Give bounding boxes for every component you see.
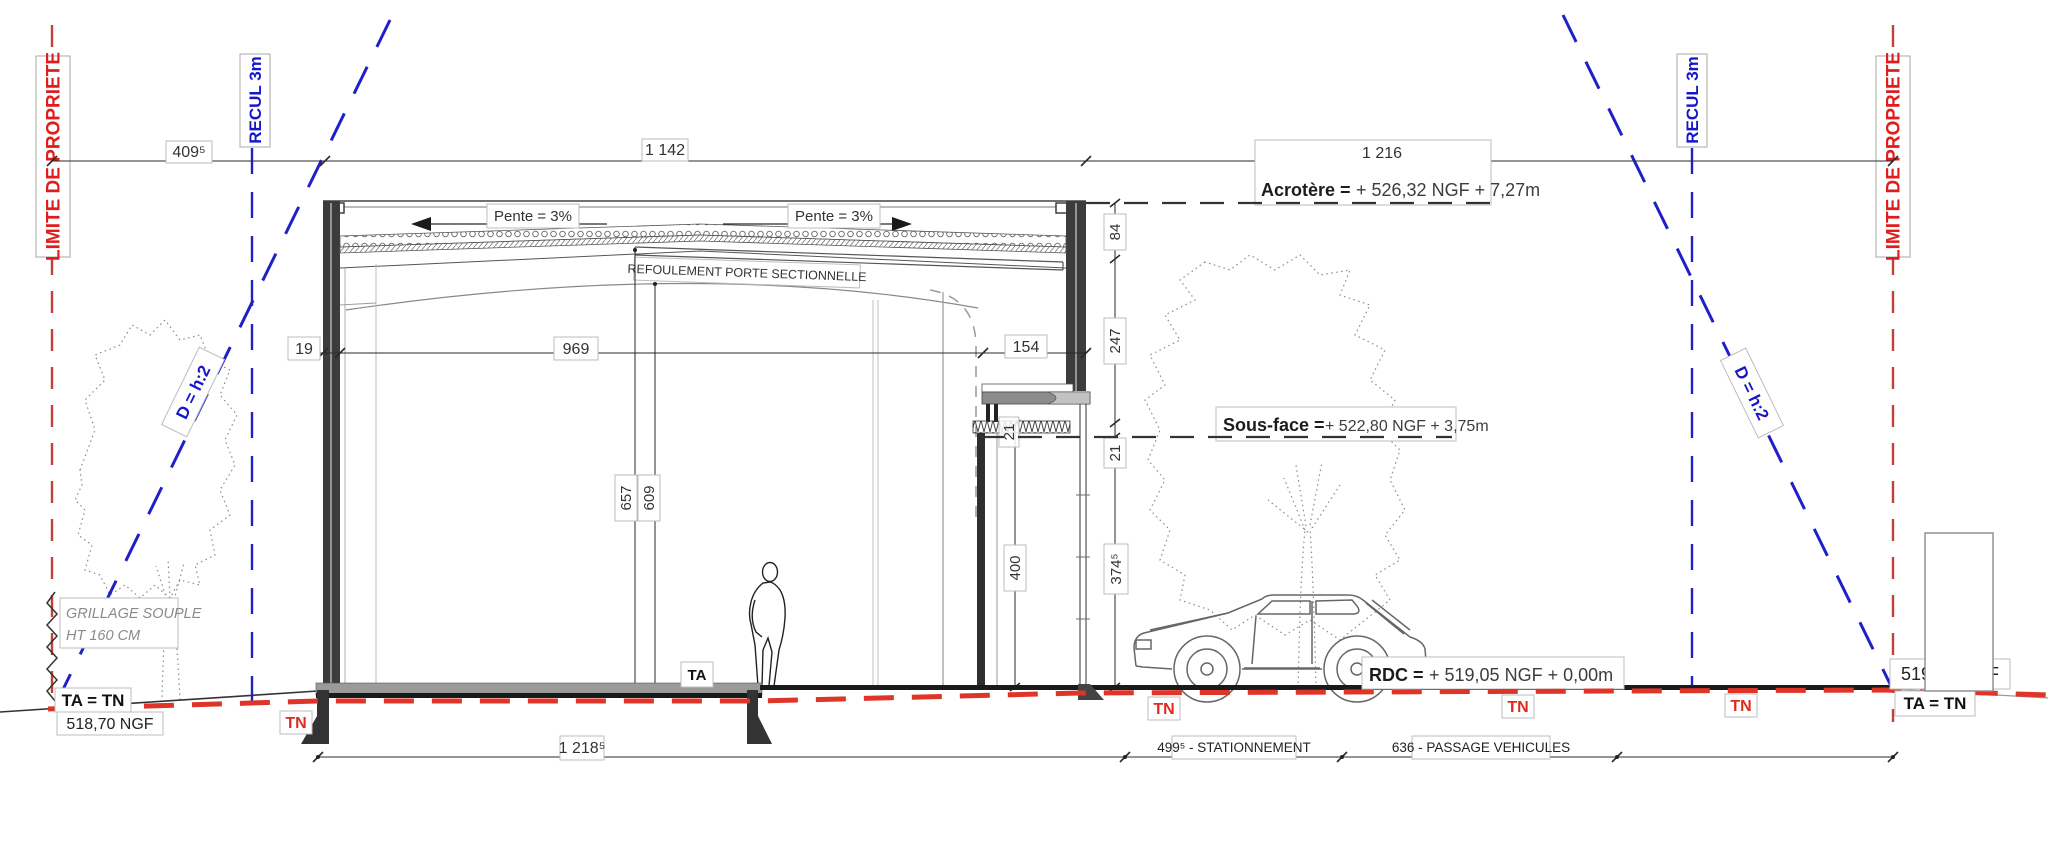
adjacent-structure: [1925, 533, 1993, 691]
dim-hall-clear-height: 657: [618, 485, 635, 510]
top-dim-middle: 1 142: [645, 142, 685, 159]
canopy-insulation: [973, 421, 1070, 433]
property-limit-text: LIMITE DE PROPRIETE: [1884, 52, 1905, 261]
setback-text: RECUL 3m: [1683, 56, 1702, 144]
dim-parapet: 84: [1107, 224, 1124, 241]
property-limit-label-left: LIMITE DE PROPRIETE: [36, 52, 70, 261]
roof-arch-chord: [346, 283, 978, 310]
ta-tn-left: TA = TN 518,70 NGF: [55, 688, 163, 735]
top-dimension-line: 409⁵ 1 142: [47, 139, 1898, 166]
dim-interior-width: 969: [563, 341, 590, 358]
acrotere-label: Acrotère =: [1261, 180, 1351, 200]
ground-platform-line: [760, 685, 1893, 690]
bottom-dim-passage: 636 - PASSAGE VEHICULES: [1392, 740, 1570, 755]
interior-height-dims: 657 609: [615, 248, 660, 689]
dim-canopy-edge: 21: [1107, 445, 1124, 462]
setback-text: RECUL 3m: [246, 56, 265, 144]
property-limit-label-right: LIMITE DE PROPRIETE: [1876, 52, 1910, 261]
bottom-dim-slab: 1 218⁵: [559, 740, 606, 757]
terrain-left-line: [0, 691, 318, 712]
bottom-dimension-line: 1 218⁵ 499⁵ - STATIONNEMENT 636 - PASSAG…: [313, 736, 1898, 762]
sousface-label: Sous-face =: [1223, 415, 1325, 435]
grillage-line1: GRILLAGE SOUPLE: [66, 606, 202, 622]
grillage-line2: HT 160 CM: [66, 628, 141, 644]
setback-label-left: RECUL 3m: [240, 54, 270, 147]
tn-label-4: TN: [1725, 694, 1757, 717]
ta-tn-text: TA = TN: [62, 691, 125, 710]
dim-facade-upper: 247: [1107, 328, 1124, 353]
bottom-dim-parking: 499⁵ - STATIONNEMENT: [1157, 740, 1311, 755]
rdc-value: + 519,05 NGF + 0,00m: [1429, 665, 1613, 685]
tn-text: TN: [1153, 701, 1174, 718]
grillage-label: GRILLAGE SOUPLE HT 160 CM: [60, 598, 202, 648]
building-section: REFOULEMENT PORTE SECTIONNELLE Pente = 3…: [323, 201, 1090, 690]
dim-under-canopy: 374⁵: [1108, 553, 1125, 584]
acrotere-value: + 526,32 NGF + 7,27m: [1356, 180, 1540, 200]
acrotere-annotation: 1 216 Acrotère = + 526,32 NGF + 7,27m: [1255, 140, 1540, 205]
ta-label: TA: [681, 662, 713, 687]
sousface-value: + 522,80 NGF + 3,75m: [1325, 418, 1489, 435]
tn-label-1: TN: [280, 711, 312, 734]
tn-text: TN: [1507, 699, 1528, 716]
parapet-cap-right: [1056, 203, 1067, 213]
door-swing-path: [930, 290, 976, 520]
opening-height-dim: 400 21: [999, 417, 1026, 691]
ta-text: TA: [688, 667, 707, 684]
rdc-label: RDC =: [1369, 665, 1424, 685]
pente-text: Pente = 3%: [494, 208, 572, 225]
right-dimension-chain: 84 247 21 374⁵: [1104, 199, 1128, 691]
foundation-mid: [747, 690, 772, 744]
rdc-annotation: RDC = + 519,05 NGF + 0,00m: [1362, 657, 1624, 689]
gabarit-diagonal-right: [1563, 15, 1893, 690]
pente-text: Pente = 3%: [795, 208, 873, 225]
entry-post: [977, 433, 985, 690]
ngf-left-text: 518,70 NGF: [66, 716, 153, 733]
slope-rule-label-left: D = h:2: [162, 347, 225, 437]
property-limit-text: LIMITE DE PROPRIETE: [44, 52, 65, 261]
ta-tn-text: TA = TN: [1904, 694, 1967, 713]
top-dim-right: 1 216: [1362, 145, 1402, 162]
dim-opening-height: 400: [1007, 555, 1024, 580]
canopy: [973, 384, 1090, 433]
top-dim-left: 409⁵: [172, 144, 205, 161]
tn-text: TN: [285, 715, 306, 732]
slope-rule-label-right: D = h:2: [1721, 348, 1784, 438]
setback-label-right: RECUL 3m: [1677, 54, 1707, 147]
tn-label-3: TN: [1502, 695, 1534, 718]
section-drawing: LIMITE DE PROPRIETE LIMITE DE PROPRIETE …: [0, 0, 2048, 841]
dim-wall-thickness: 19: [295, 341, 313, 358]
section-svg: LIMITE DE PROPRIETE LIMITE DE PROPRIETE …: [0, 0, 2048, 841]
tn-label-2: TN: [1148, 697, 1180, 720]
person-figure: [750, 563, 786, 687]
wall-dimension-line: 19 969 154: [288, 335, 1091, 360]
dim-door-clear-height: 609: [641, 485, 658, 510]
dim-entry-depth: 154: [1013, 339, 1040, 356]
pente-left: Pente = 3%: [411, 204, 607, 231]
tn-text: TN: [1730, 698, 1751, 715]
